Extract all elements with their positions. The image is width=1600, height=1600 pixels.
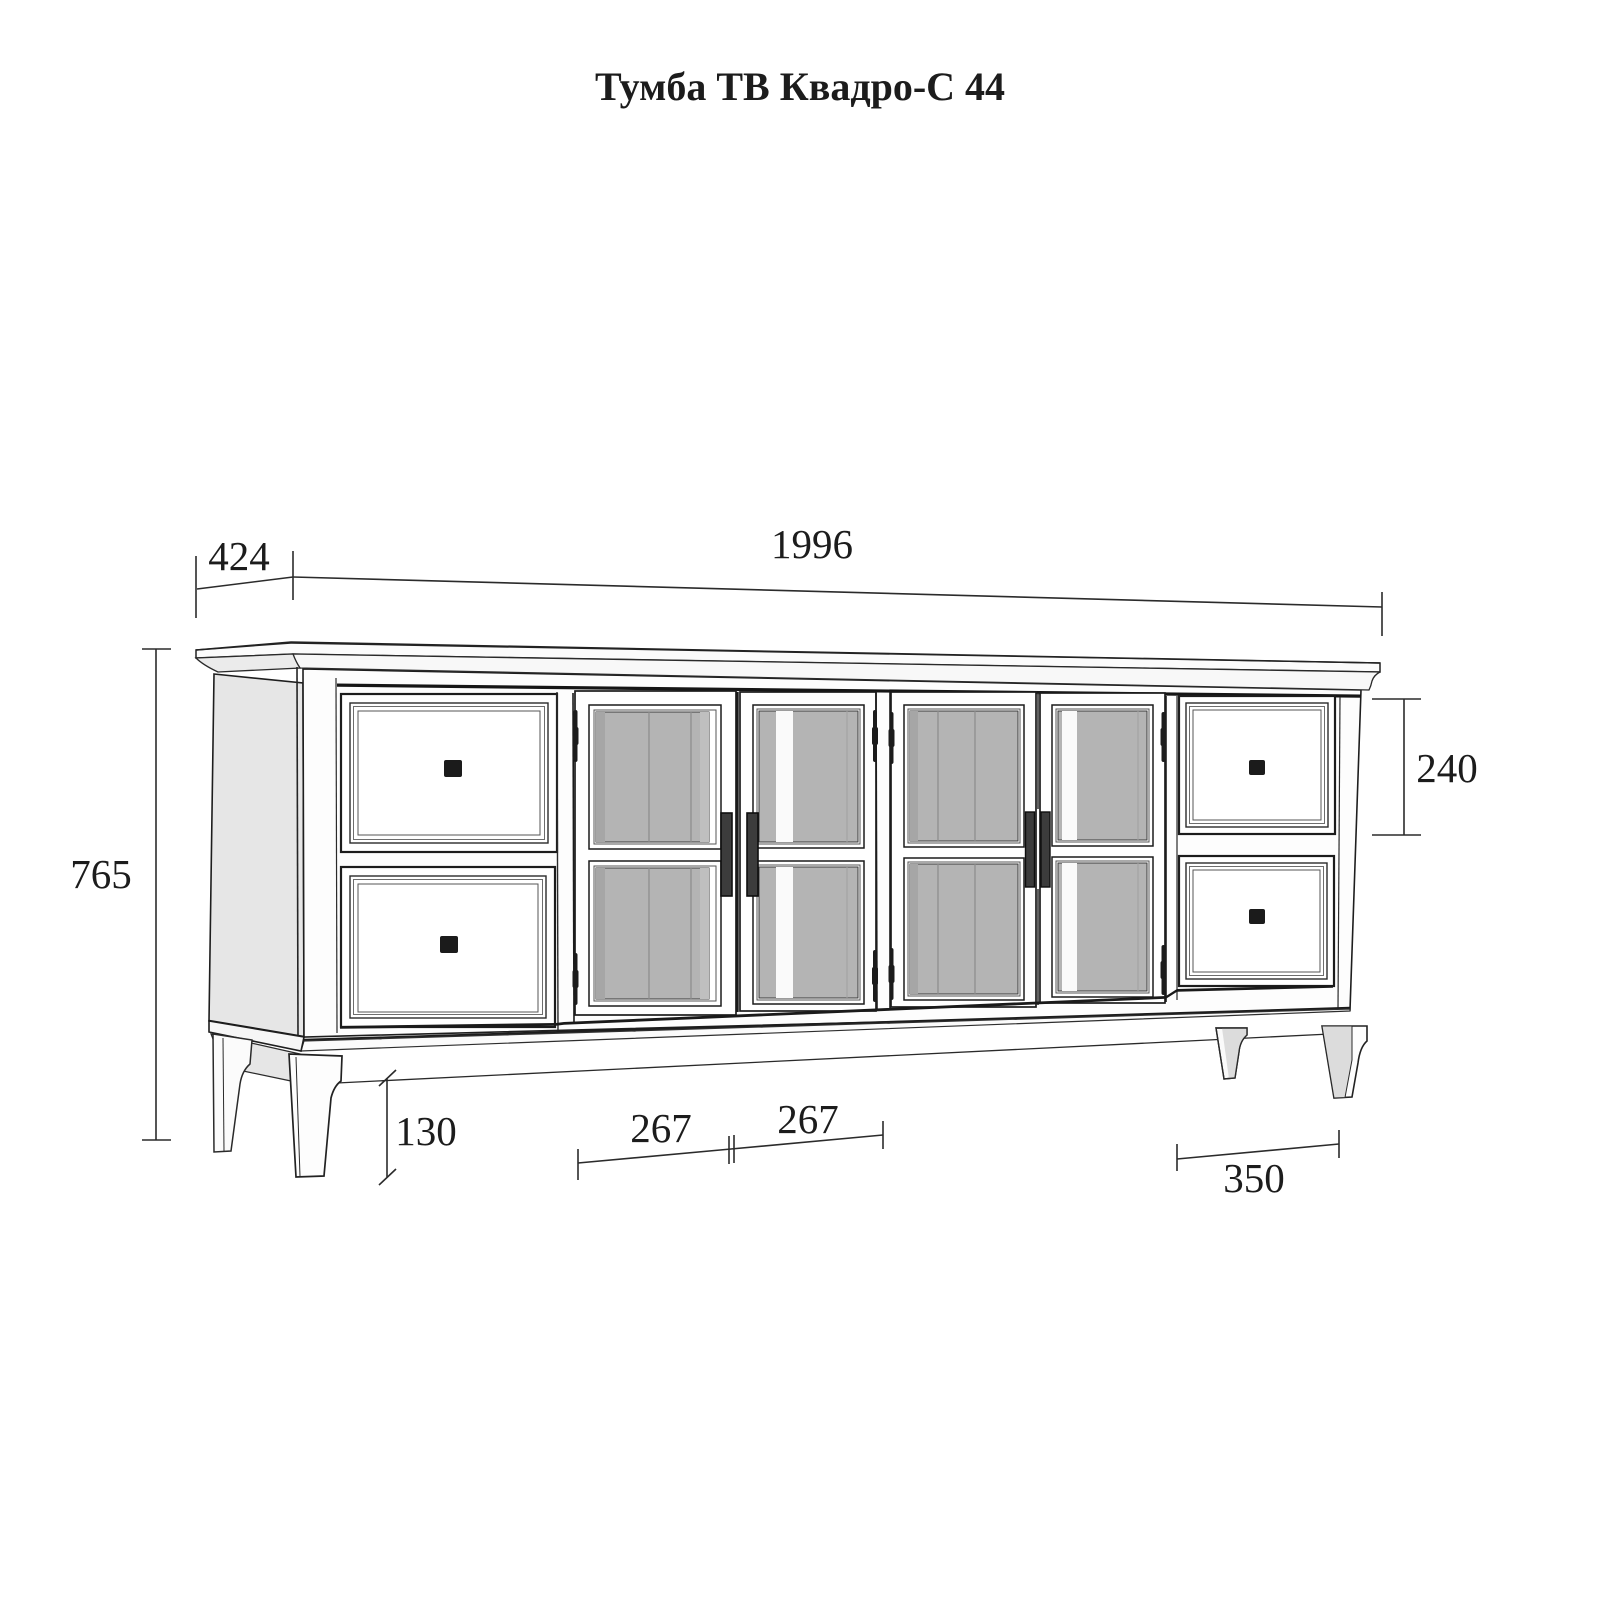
svg-text:130: 130 [395, 1108, 457, 1154]
svg-text:1996: 1996 [771, 521, 853, 567]
svg-text:424: 424 [208, 533, 270, 579]
svg-text:765: 765 [70, 851, 132, 897]
svg-text:240: 240 [1416, 745, 1478, 791]
svg-text:Тумба ТВ Квадро-С 44: Тумба ТВ Квадро-С 44 [595, 64, 1005, 109]
svg-text:350: 350 [1223, 1155, 1285, 1201]
svg-text:267: 267 [777, 1096, 839, 1142]
svg-text:267: 267 [630, 1105, 692, 1151]
